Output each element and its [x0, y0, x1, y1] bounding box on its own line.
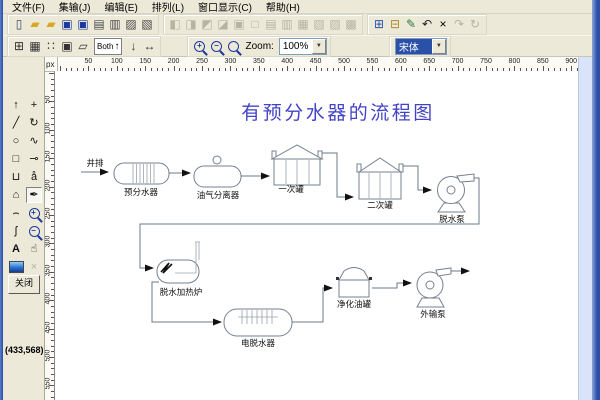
delete-object-tool: ×: [26, 259, 42, 275]
h-ruler-label: 500: [334, 58, 354, 65]
pipe-to-secondary-tank[interactable]: [322, 153, 353, 197]
bring-forward-button: ◩: [199, 16, 215, 33]
h-ruler-label: 150: [135, 58, 155, 65]
zoom-value: 100%: [280, 41, 312, 52]
print-button[interactable]: ▤: [91, 16, 107, 33]
redo-button: ↷: [451, 16, 467, 33]
v-ruler-label: 250: [45, 205, 52, 223]
align-right-button: ▦: [295, 16, 311, 33]
vertical-scrollbar[interactable]: [578, 57, 593, 400]
align-center-button: ▥: [279, 16, 295, 33]
svg-text:油气分离器: 油气分离器: [197, 190, 240, 200]
electric-dehydrator[interactable]: 电脱水器: [224, 309, 292, 348]
v-ruler-label: 300: [45, 233, 52, 251]
v-ruler-label: 450: [45, 318, 52, 336]
dewatering-pump[interactable]: 脱水泵: [438, 174, 475, 224]
zoom-label: Zoom:: [245, 41, 273, 52]
spray-tool[interactable]: å: [26, 169, 42, 185]
menu-file[interactable]: 文件(F): [5, 0, 52, 14]
zoom-combobox[interactable]: 100% ▼: [279, 38, 327, 55]
font-value: 宋体: [396, 39, 432, 54]
window-border-right: [592, 0, 600, 400]
v-ruler-label: 150: [45, 148, 52, 166]
close-button[interactable]: 关闭: [8, 275, 40, 294]
connector-tool[interactable]: ∿: [26, 133, 42, 149]
open-template-button[interactable]: ▰: [43, 16, 59, 33]
ruler-unit-label: px: [46, 60, 54, 69]
toolbar-group-grid: ⊞▦∷▣▱ Both ↑ ↓↔: [7, 36, 161, 57]
toolbar-view: ⊞▦∷▣▱ Both ↑ ↓↔ +− Zoom: 100% ▼ 宋体 ▼: [3, 36, 592, 57]
snap-to-grid-button[interactable]: ⊞: [11, 38, 27, 55]
pre-water-separator[interactable]: 预分水器: [114, 163, 169, 197]
vertical-ruler: 50100150200250300350400450500550: [44, 71, 55, 400]
freehand-tool[interactable]: ʃ: [8, 223, 24, 239]
grid-settings-button[interactable]: ▣: [59, 38, 75, 55]
print-preview-button[interactable]: ▥: [107, 16, 123, 33]
menu-bar: 文件(F)集输(J)编辑(E)排列(L)窗口显示(C)帮助(H): [3, 0, 592, 14]
toolbar-group-arrange: ◧◨◩◪▣□▤▥▦▧▨▩: [163, 14, 363, 35]
h-ruler-label: 200: [164, 58, 184, 65]
h-ruler-label: 550: [362, 58, 382, 65]
pipe-to-oil-tank[interactable]: [292, 288, 332, 322]
ellipse-tool[interactable]: ○: [8, 133, 24, 149]
grid-icon-set: ⊞▦∷▣▱: [11, 38, 91, 55]
v-ruler-label: 100: [45, 119, 52, 137]
dropdown-arrow-icon[interactable]: ▼: [432, 39, 446, 54]
rotate-tool[interactable]: ↻: [26, 115, 42, 131]
delete-button[interactable]: ×: [435, 16, 451, 33]
ungroup-button: □: [247, 16, 263, 33]
crosshair-tool[interactable]: +: [26, 97, 42, 113]
new-drawing-button[interactable]: ▯: [11, 16, 27, 33]
h-ruler-label: 750: [476, 58, 496, 65]
primary-tank[interactable]: 一次罐: [272, 145, 322, 194]
pan-tool[interactable]: ☝: [26, 241, 42, 257]
format-painter-button[interactable]: ✎: [403, 16, 419, 33]
menu-help[interactable]: 帮助(H): [259, 0, 307, 14]
show-grid-button[interactable]: ▦: [27, 38, 43, 55]
save-as-button[interactable]: ▣: [75, 16, 91, 33]
dot-grid-button[interactable]: ∷: [43, 38, 59, 55]
line-tool[interactable]: ╱: [8, 115, 24, 131]
zoom-in-icon: +: [29, 208, 40, 219]
save-button[interactable]: ▣: [59, 16, 75, 33]
axis-mode-box[interactable]: Both ↑: [94, 38, 122, 55]
flip-vertical-button: ▨: [327, 16, 343, 33]
zoom-out-icon: −: [29, 226, 40, 237]
pipe-to-export-pump[interactable]: [372, 283, 411, 288]
dropdown-arrow-icon[interactable]: ▼: [312, 39, 326, 54]
select-tool[interactable]: ↑: [8, 97, 24, 113]
rectangle-tool[interactable]: □: [8, 151, 24, 167]
v-ruler-label: 400: [45, 290, 52, 308]
h-ruler-label: 350: [249, 58, 269, 65]
zoom-in-tool[interactable]: +: [26, 205, 42, 221]
axis-mode-label: Both: [97, 42, 113, 51]
svg-text:二次罐: 二次罐: [367, 200, 393, 210]
cursor-coordinates: (433,568): [5, 345, 44, 355]
toolbar-group-edit: ⊞⊟✎↶×↷↻: [367, 14, 487, 35]
toolbar-group-file: ▯▰▰▣▣▤▥▨▧: [7, 14, 159, 35]
vertical-direction-button[interactable]: ↓: [125, 38, 141, 55]
svg-text:脱水加热炉: 脱水加热炉: [160, 287, 203, 297]
menu-arrange[interactable]: 排列(L): [145, 0, 191, 14]
page-setup-button[interactable]: ▨: [123, 16, 139, 33]
copy-button[interactable]: ⊞: [371, 16, 387, 33]
menu-window-display[interactable]: 窗口显示(C): [191, 0, 259, 14]
menu-gathering[interactable]: 集输(J): [52, 0, 98, 14]
rotate-object-button: ▩: [343, 16, 359, 33]
clean-oil-tank[interactable]: 净化油罐: [336, 268, 372, 310]
dewatering-heater[interactable]: 脱水加热炉: [157, 242, 202, 297]
open-shape-tool[interactable]: ⊔: [8, 169, 24, 185]
toolbar-group-zoom: +− Zoom: 100% ▼: [187, 36, 330, 57]
zoom-tool-button[interactable]: [225, 38, 242, 55]
h-ruler-label: 650: [419, 58, 439, 65]
flip-horizontal-button: ▧: [311, 16, 327, 33]
window-border-left: [0, 0, 3, 400]
align-left-button: ▤: [263, 16, 279, 33]
export-pump[interactable]: 外输泵: [417, 268, 451, 319]
svg-text:一次罐: 一次罐: [278, 184, 304, 194]
svg-text:预分水器: 预分水器: [124, 187, 159, 197]
h-ruler-label: 50: [78, 58, 98, 65]
send-backward-button: ◪: [215, 16, 231, 33]
h-ruler-label: 600: [391, 58, 411, 65]
up-arrow-icon: ↑: [114, 41, 119, 52]
h-ruler-label: 800: [504, 58, 524, 65]
page-orientation-button[interactable]: ▱: [75, 38, 91, 55]
zoom-icon-set: +−: [191, 38, 242, 55]
flow-diagram: 有预分水器的流程图 井排 预分水器 油气分离器: [55, 71, 578, 400]
h-ruler-label: 450: [306, 58, 326, 65]
h-ruler-label: 400: [277, 58, 297, 65]
secondary-tank[interactable]: 二次罐: [357, 158, 403, 210]
zoom-out-tool[interactable]: −: [26, 223, 42, 239]
drawing-canvas[interactable]: 有预分水器的流程图 井排 预分水器 油气分离器: [55, 71, 578, 400]
polygon-tool[interactable]: ⌂: [8, 187, 24, 203]
tool-palette: ↑+╱↻○∿□⊸⊔å⌂✒⌢+ʃ−A☝× 关闭 (433,568): [3, 57, 45, 400]
horizontal-direction-button[interactable]: ↔: [141, 38, 157, 55]
svg-text:脱水泵: 脱水泵: [439, 214, 465, 224]
zoom-tool-icon: [228, 41, 239, 52]
v-ruler-label: 350: [45, 261, 52, 279]
paste-button[interactable]: ⊟: [387, 16, 403, 33]
h-ruler-label: 250: [192, 58, 212, 65]
node-tool[interactable]: ⊸: [26, 151, 42, 167]
pipe-to-dewatering-pump[interactable]: [403, 166, 431, 190]
arc-tool[interactable]: ⌢: [8, 205, 24, 221]
font-combobox[interactable]: 宋体 ▼: [395, 38, 447, 55]
v-ruler-label: 500: [45, 347, 52, 365]
h-ruler-label: 850: [533, 58, 553, 65]
svg-text:净化油罐: 净化油罐: [337, 299, 372, 309]
v-ruler-label: 550: [45, 375, 52, 393]
image-tool[interactable]: [8, 259, 24, 275]
zoom-out-button[interactable]: −: [208, 38, 225, 55]
image-thumbnail-icon: [9, 261, 24, 273]
open-drawing-button[interactable]: ▰: [27, 16, 43, 33]
svg-text:外输泵: 外输泵: [420, 309, 446, 319]
h-ruler-label: 100: [107, 58, 127, 65]
diagram-title[interactable]: 有预分水器的流程图: [241, 102, 435, 124]
menu-edit[interactable]: 编辑(E): [97, 0, 144, 14]
zoom-in-button[interactable]: +: [191, 38, 208, 55]
refresh-button: ↻: [467, 16, 483, 33]
bring-to-front-button: ◧: [167, 16, 183, 33]
app-window: 文件(F)集输(J)编辑(E)排列(L)窗口显示(C)帮助(H) ▯▰▰▣▣▤▥…: [0, 0, 600, 400]
direction-icon-set: ↓↔: [125, 38, 157, 55]
pen-tool[interactable]: ✒: [26, 187, 42, 203]
inlet-well-row[interactable]: 井排: [81, 158, 108, 172]
svg-text:电脱水器: 电脱水器: [241, 338, 276, 348]
pipe-to-heater[interactable]: [140, 178, 479, 268]
h-ruler-label: 300: [220, 58, 240, 65]
horizontal-ruler: px 5010015020025030035040045050055060065…: [44, 57, 578, 72]
v-ruler-label: 200: [45, 176, 52, 194]
v-ruler-label: 50: [45, 91, 52, 109]
zoom-out-icon: −: [211, 41, 222, 52]
printer-setup-button[interactable]: ▧: [139, 16, 155, 33]
oil-gas-separator[interactable]: 油气分离器: [194, 156, 241, 200]
zoom-in-icon: +: [194, 41, 205, 52]
text-tool[interactable]: A: [8, 241, 24, 257]
svg-text:井排: 井排: [86, 158, 104, 168]
group-button: ▣: [231, 16, 247, 33]
toolbar-standard: ▯▰▰▣▣▤▥▨▧◧◨◩◪▣□▤▥▦▧▨▩⊞⊟✎↶×↷↻: [3, 14, 592, 36]
undo-button[interactable]: ↶: [419, 16, 435, 33]
send-to-back-button: ◨: [183, 16, 199, 33]
toolbar-group-font: 宋体 ▼: [389, 36, 451, 57]
h-ruler-label: 700: [448, 58, 468, 65]
